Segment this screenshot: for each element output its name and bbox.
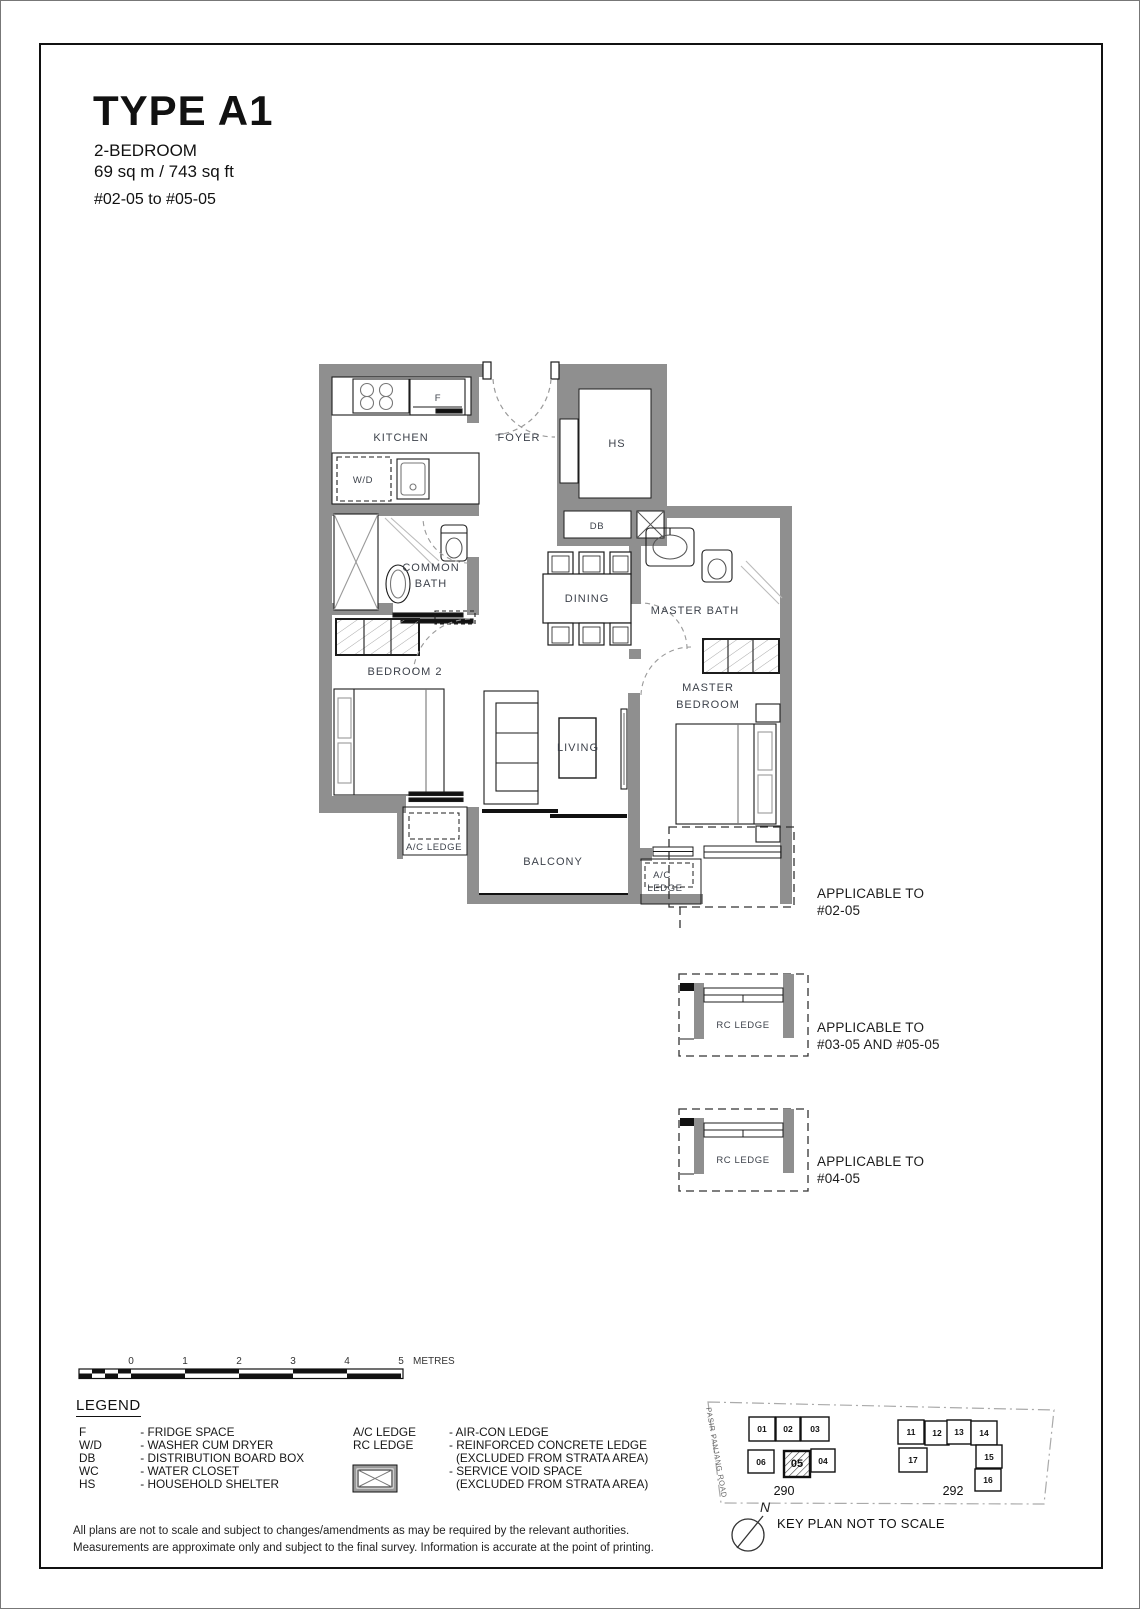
legend-rc-def: - REINFORCED CONCRETE LEDGE	[449, 1438, 647, 1452]
scale-tick-3: 3	[290, 1356, 296, 1367]
label-common-bath-1: COMMON	[402, 562, 459, 574]
label-rc-ledge-2: RC LEDGE	[716, 1155, 769, 1166]
label-kitchen: KITCHEN	[373, 432, 428, 444]
legend-def: - WATER CLOSET	[140, 1464, 239, 1478]
floorplan-page: TYPE A1 2-BEDROOM 69 sq m / 743 sq ft #0…	[0, 0, 1140, 1609]
legend-row-f: F - FRIDGE SPACE	[79, 1425, 234, 1439]
legend-row-db: DB - DISTRIBUTION BOARD BOX	[79, 1451, 304, 1465]
legend-def: - WASHER CUM DRYER	[140, 1438, 273, 1452]
annotation-line: APPLICABLE TO	[817, 1019, 940, 1036]
annotation-04-05: APPLICABLE TO #04-05	[817, 1153, 924, 1187]
legend-ac-abbr: A/C LEDGE	[353, 1425, 416, 1439]
unit-11: 11	[907, 1427, 916, 1437]
label-bedroom2: BEDROOM 2	[367, 666, 442, 678]
unit-14: 14	[979, 1428, 989, 1438]
annotation-line: #02-05	[817, 902, 924, 919]
annotation-line: #04-05	[817, 1170, 924, 1187]
label-foyer: FOYER	[498, 432, 541, 444]
scale-tick-0: 0	[128, 1356, 134, 1367]
label-db: DB	[590, 521, 604, 532]
service-void-legend-symbol	[353, 1465, 397, 1492]
label-rc-ledge-1: RC LEDGE	[716, 1020, 769, 1031]
label-wd: W/D	[353, 475, 373, 486]
label-ac-ledge-left: A/C LEDGE	[406, 842, 462, 853]
label-ac-ledge-right-1: A/C	[653, 870, 671, 881]
north-label: N	[760, 1499, 771, 1515]
block-292-label: 292	[943, 1484, 964, 1498]
block-290-label: 290	[774, 1484, 795, 1498]
unit-01: 01	[757, 1424, 767, 1434]
rc-ledge-detail-2	[679, 1109, 808, 1191]
legend-void-def: - SERVICE VOID SPACE	[449, 1464, 582, 1478]
legend-rc-def2: (EXCLUDED FROM STRATA AREA)	[456, 1451, 648, 1465]
keyplan-caption: KEY PLAN NOT TO SCALE	[777, 1516, 945, 1531]
legend-abbr: WC	[79, 1464, 137, 1478]
legend-abbr: F	[79, 1425, 137, 1439]
scale-tick-5: 5	[398, 1356, 404, 1367]
unit-13: 13	[954, 1427, 964, 1437]
scale-tick-1: 1	[182, 1356, 188, 1367]
annotation-line: APPLICABLE TO	[817, 1153, 924, 1170]
unit-05: 05	[791, 1458, 803, 1470]
floorplan-drawing: 0 1 2 3 4 5 METRES PASIR PANJANG ROAD	[1, 1, 1140, 1609]
legend-void-def2: (EXCLUDED FROM STRATA AREA)	[456, 1477, 648, 1491]
scale-tick-4: 4	[344, 1356, 350, 1367]
unit-16: 16	[983, 1475, 993, 1485]
entrance-door	[483, 362, 559, 437]
label-hs: HS	[608, 438, 625, 450]
master-bath-fixtures	[641, 528, 782, 649]
legend-abbr: DB	[79, 1451, 137, 1465]
rc-ledge-detail-1	[679, 974, 808, 1056]
legend-rc-abbr: RC LEDGE	[353, 1438, 413, 1452]
label-fridge: F	[435, 393, 441, 404]
label-master-bedroom-1: MASTER	[682, 682, 734, 694]
label-master-bath: MASTER BATH	[651, 605, 739, 617]
legend-row-wd: W/D - WASHER CUM DRYER	[79, 1438, 273, 1452]
legend-row-hs: HS - HOUSEHOLD SHELTER	[79, 1477, 279, 1491]
unit-02: 02	[783, 1424, 793, 1434]
label-master-bedroom-2: BEDROOM	[676, 699, 740, 711]
label-common-bath-2: BATH	[415, 578, 448, 590]
legend-abbr: HS	[79, 1477, 137, 1491]
unit-17: 17	[908, 1455, 918, 1465]
living-furniture	[484, 647, 691, 804]
north-arrow-icon	[732, 1516, 764, 1551]
annotation-02-05: APPLICABLE TO #02-05	[817, 885, 924, 919]
master-bedroom-furniture	[676, 639, 780, 842]
bedroom2-furniture	[334, 619, 471, 802]
scale-tick-2: 2	[236, 1356, 242, 1367]
legend-def: - FRIDGE SPACE	[140, 1425, 234, 1439]
annotation-03-05-05-05: APPLICABLE TO #03-05 AND #05-05	[817, 1019, 940, 1053]
annotation-line: #03-05 AND #05-05	[817, 1036, 940, 1053]
key-plan: PASIR PANJANG ROAD 01 02 03 06 05 0	[704, 1402, 1054, 1551]
legend-abbr: W/D	[79, 1438, 137, 1452]
legend-ac-def: - AIR-CON LEDGE	[449, 1425, 549, 1439]
legend-def: - DISTRIBUTION BOARD BOX	[140, 1451, 304, 1465]
disclaimer-line-2: Measurements are approximate only and su…	[73, 1542, 654, 1554]
annotation-line: APPLICABLE TO	[817, 885, 924, 902]
scale-bar: 0 1 2 3 4 5 METRES	[79, 1356, 455, 1379]
legend-title: LEGEND	[76, 1397, 141, 1417]
legend-def: - HOUSEHOLD SHELTER	[140, 1477, 279, 1491]
label-living: LIVING	[557, 742, 599, 754]
road-label: PASIR PANJANG ROAD	[704, 1407, 729, 1499]
unit-12: 12	[932, 1428, 942, 1438]
disclaimer-line-1: All plans are not to scale and subject t…	[73, 1525, 629, 1537]
label-ac-ledge-right-2: LEDGE	[647, 883, 682, 894]
unit-03: 03	[810, 1424, 820, 1434]
legend-row-wc: WC - WATER CLOSET	[79, 1464, 239, 1478]
label-balcony: BALCONY	[523, 856, 583, 868]
unit-06: 06	[756, 1457, 766, 1467]
unit-15: 15	[984, 1452, 994, 1462]
scale-unit: METRES	[413, 1356, 455, 1367]
unit-04: 04	[818, 1456, 828, 1466]
label-dining: DINING	[565, 593, 610, 605]
